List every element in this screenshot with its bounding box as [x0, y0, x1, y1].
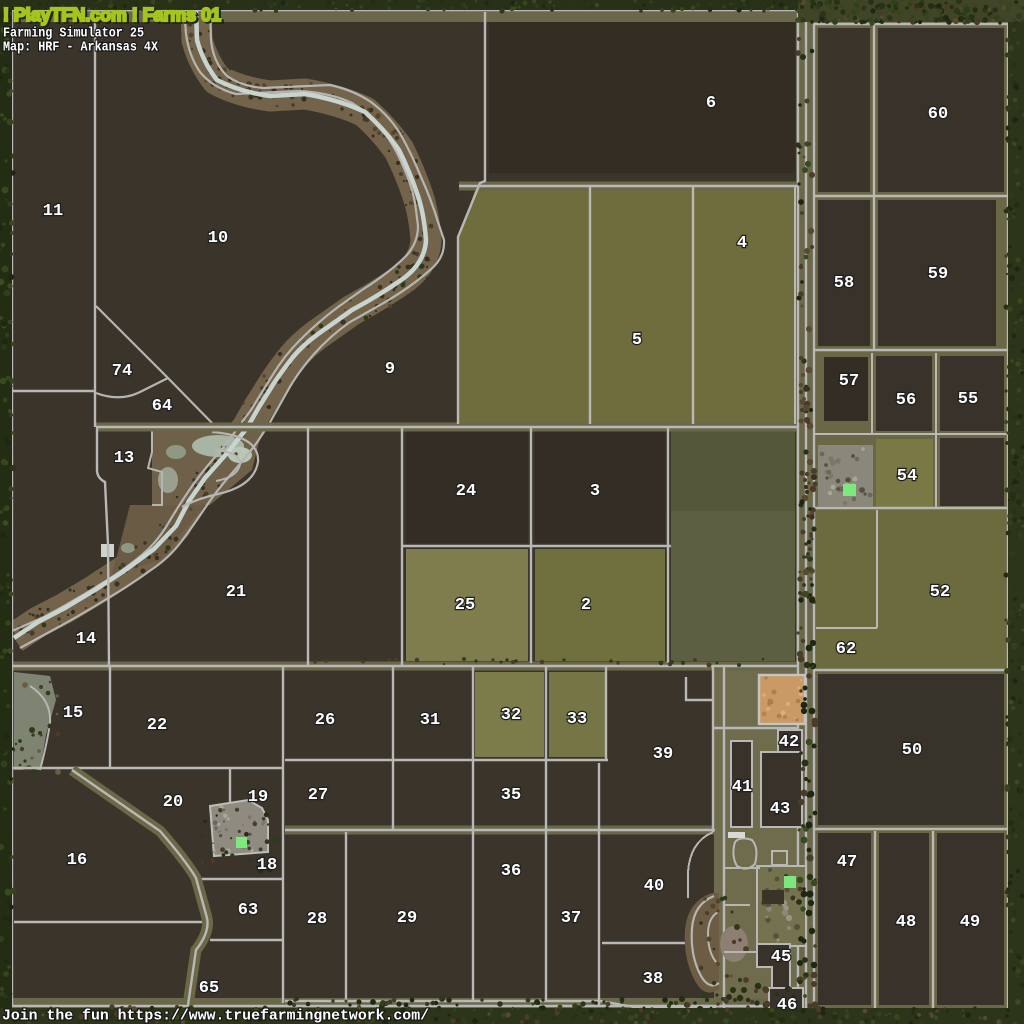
svg-text:27: 27: [308, 786, 328, 805]
svg-text:15: 15: [63, 704, 83, 723]
svg-text:Farming Simulator 25: Farming Simulator 25: [3, 27, 144, 42]
svg-text:63: 63: [238, 901, 258, 920]
svg-text:56: 56: [896, 391, 916, 410]
svg-text:6: 6: [706, 94, 716, 113]
svg-text:43: 43: [770, 800, 790, 819]
svg-text:48: 48: [896, 913, 916, 932]
svg-text:42: 42: [779, 733, 799, 752]
svg-text:45: 45: [771, 948, 791, 967]
svg-text:20: 20: [163, 793, 183, 812]
svg-text:2: 2: [581, 596, 591, 615]
svg-text:! PlayTFN.com ! Farms 01: ! PlayTFN.com ! Farms 01: [3, 5, 221, 25]
svg-text:19: 19: [248, 788, 268, 807]
svg-text:74: 74: [112, 362, 132, 381]
svg-text:49: 49: [960, 913, 980, 932]
svg-text:41: 41: [732, 778, 752, 797]
svg-text:38: 38: [643, 970, 663, 989]
svg-text:62: 62: [836, 640, 856, 659]
svg-text:26: 26: [315, 711, 335, 730]
svg-text:50: 50: [902, 741, 922, 760]
svg-text:33: 33: [567, 710, 587, 729]
svg-text:65: 65: [199, 979, 219, 998]
svg-text:22: 22: [147, 716, 167, 735]
svg-text:40: 40: [644, 877, 664, 896]
svg-text:31: 31: [420, 711, 440, 730]
svg-text:5: 5: [632, 331, 642, 350]
svg-text:4: 4: [737, 234, 747, 253]
svg-text:Map: HRF - Arkansas 4X: Map: HRF - Arkansas 4X: [3, 41, 159, 56]
svg-text:60: 60: [928, 105, 948, 124]
svg-text:18: 18: [257, 856, 277, 875]
svg-text:59: 59: [928, 265, 948, 284]
svg-text:13: 13: [114, 449, 134, 468]
svg-text:3: 3: [590, 482, 600, 501]
svg-text:39: 39: [653, 745, 673, 764]
svg-text:52: 52: [930, 583, 950, 602]
svg-text:9: 9: [385, 360, 395, 379]
svg-text:36: 36: [501, 862, 521, 881]
svg-text:Join the fun https://www.truef: Join the fun https://www.truefarmingnetw…: [2, 1009, 429, 1024]
svg-text:46: 46: [777, 996, 797, 1015]
svg-text:55: 55: [958, 390, 978, 409]
svg-text:11: 11: [43, 202, 63, 221]
svg-text:32: 32: [501, 706, 521, 725]
svg-text:29: 29: [397, 909, 417, 928]
svg-text:28: 28: [307, 910, 327, 929]
svg-text:35: 35: [501, 786, 521, 805]
svg-text:57: 57: [839, 372, 859, 391]
svg-text:24: 24: [456, 482, 476, 501]
svg-text:14: 14: [76, 630, 96, 649]
svg-text:54: 54: [897, 467, 917, 486]
svg-text:37: 37: [561, 909, 581, 928]
svg-text:47: 47: [837, 853, 857, 872]
svg-text:21: 21: [226, 583, 246, 602]
svg-text:25: 25: [455, 596, 475, 615]
svg-text:16: 16: [67, 851, 87, 870]
svg-text:58: 58: [834, 274, 854, 293]
svg-text:64: 64: [152, 397, 172, 416]
svg-text:10: 10: [208, 229, 228, 248]
